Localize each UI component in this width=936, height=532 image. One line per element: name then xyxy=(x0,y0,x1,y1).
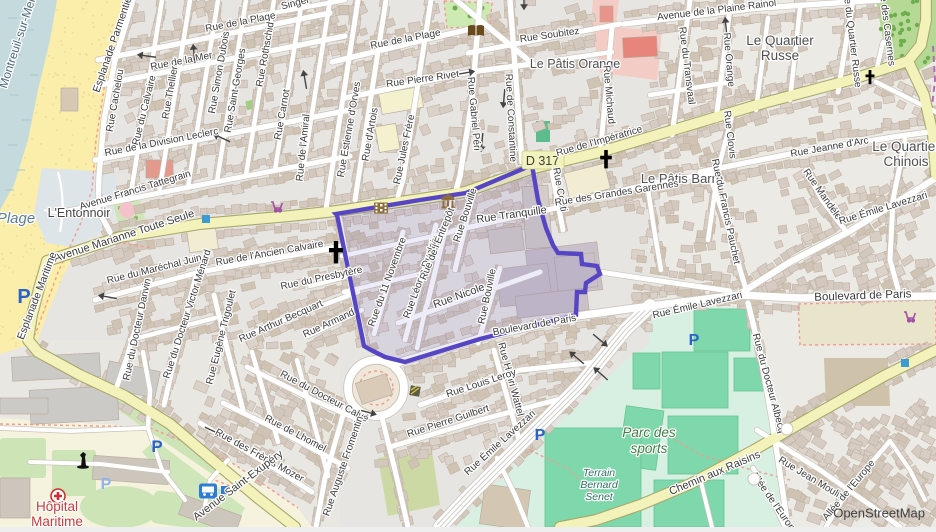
svg-text:Bernard: Bernard xyxy=(580,479,619,491)
svg-text:Maritime: Maritime xyxy=(31,514,83,527)
svg-text:Terrain: Terrain xyxy=(583,467,615,479)
svg-text:Hôpital: Hôpital xyxy=(36,499,78,514)
svg-text:Plage: Plage xyxy=(0,210,35,227)
svg-text:D 317: D 317 xyxy=(526,154,559,168)
svg-text:Chinois: Chinois xyxy=(883,154,928,169)
svg-text:sports: sports xyxy=(631,441,668,456)
svg-text:Senet: Senet xyxy=(585,491,614,503)
svg-text:Russe: Russe xyxy=(761,48,799,63)
svg-text:P: P xyxy=(535,427,546,444)
svg-text:Parc des: Parc des xyxy=(622,425,676,440)
svg-text:P: P xyxy=(689,332,700,349)
svg-text:Le Quartier: Le Quartier xyxy=(746,33,814,48)
svg-text:Le Quartier: Le Quartier xyxy=(872,139,936,154)
svg-text:P: P xyxy=(151,437,162,456)
svg-text:OpenStreetMap: OpenStreetMap xyxy=(833,506,925,521)
svg-text:L'Entonnoir: L'Entonnoir xyxy=(48,206,111,220)
svg-text:P: P xyxy=(101,476,112,493)
